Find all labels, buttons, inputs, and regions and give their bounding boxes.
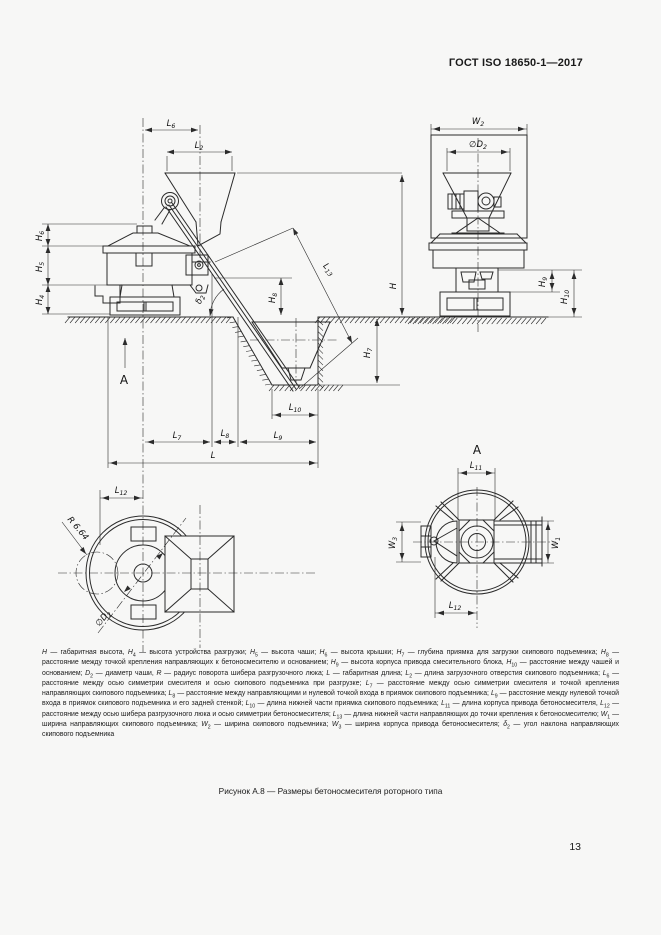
dim-label-H: H — [389, 282, 399, 289]
dim-label-H4: H4 — [35, 295, 46, 305]
main-view-outlines — [68, 135, 548, 630]
legend-text: H — габаритная высота, H4 — высота устро… — [42, 648, 619, 741]
page-number: 13 — [569, 841, 581, 853]
figure-caption: Рисунок А.8 — Размеры бетоносмесителя ро… — [42, 786, 619, 796]
dim-label-H8: H8 — [268, 293, 279, 303]
dim-label-L11: L11 — [470, 461, 483, 472]
dim-label-W1: W1 — [551, 537, 562, 549]
dim-label-H10: H10 — [560, 290, 571, 304]
dim-label-D2-plan: ∅D2 — [94, 609, 114, 630]
document-page: ГОСТ ISO 18650-1—2017 — [0, 0, 661, 935]
dim-label-L12-viewA: L12 — [449, 601, 462, 612]
dim-label-H5: H5 — [35, 262, 46, 272]
dim-label-L2: L2 — [195, 141, 204, 152]
dim-label-L6: L6 — [167, 119, 176, 130]
view-A-title: А — [473, 443, 482, 457]
dim-label-H9: H9 — [538, 277, 549, 287]
dim-label-L8: L8 — [221, 429, 230, 440]
dim-label-H7: H7 — [363, 348, 374, 358]
dim-label-D2-front: ∅D2 — [469, 140, 487, 151]
dim-label-L: L — [211, 451, 216, 461]
dim-label-L10: L10 — [289, 403, 302, 414]
dim-label-L12-plan: L12 — [115, 486, 128, 497]
view-arrow-label: А — [120, 373, 129, 387]
dim-label-L9: L9 — [274, 431, 283, 442]
dim-label-R: R 6.64 — [65, 515, 90, 543]
dim-label-L13: L13 — [320, 262, 337, 279]
dim-label-W3: W3 — [388, 537, 399, 549]
dim-label-W2: W2 — [472, 117, 484, 128]
dim-label-H6: H6 — [35, 231, 46, 241]
dim-label-delta2: δ2 — [194, 294, 207, 306]
dim-label-L7: L7 — [173, 431, 182, 442]
